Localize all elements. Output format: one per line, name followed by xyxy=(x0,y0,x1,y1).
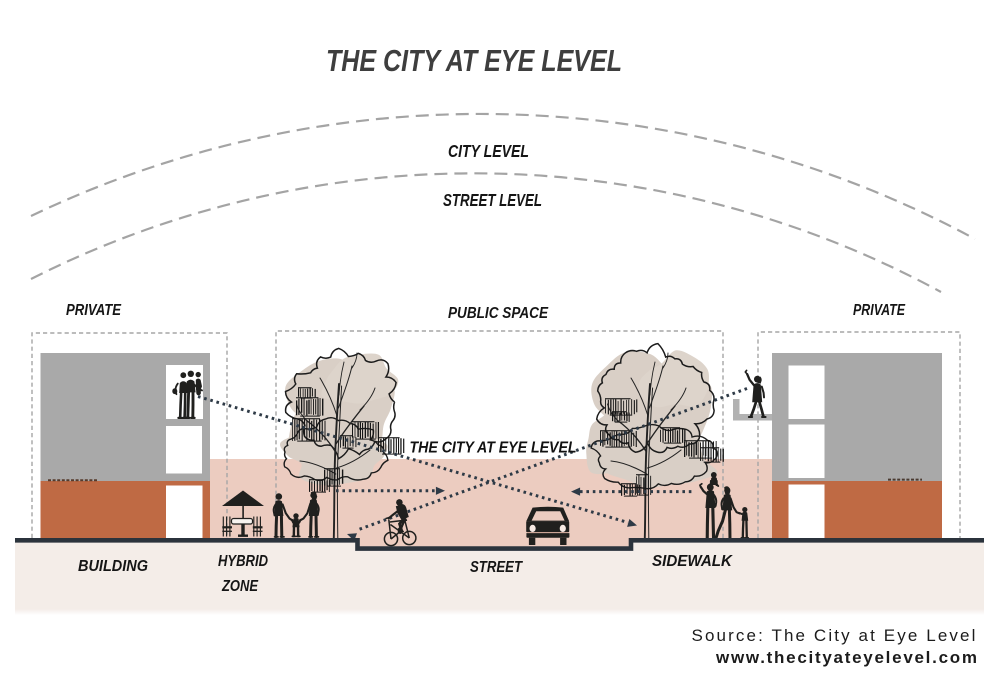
svg-text:STREET LEVEL: STREET LEVEL xyxy=(443,190,542,210)
svg-text:HYBRID: HYBRID xyxy=(218,553,268,570)
svg-text:PRIVATE: PRIVATE xyxy=(853,302,906,319)
svg-text:THE CITY AT EYE LEVEL: THE CITY AT EYE LEVEL xyxy=(326,43,622,78)
svg-text:STREET: STREET xyxy=(470,559,523,576)
svg-text:Source: The City at Eye Level: Source: The City at Eye Level xyxy=(692,626,978,645)
svg-text:THE CITY AT EYE LEVEL: THE CITY AT EYE LEVEL xyxy=(410,440,577,457)
svg-text:CITY LEVEL: CITY LEVEL xyxy=(448,141,529,161)
svg-text:PRIVATE: PRIVATE xyxy=(66,302,122,319)
svg-text:PUBLIC SPACE: PUBLIC SPACE xyxy=(448,305,549,322)
svg-text:ZONE: ZONE xyxy=(221,578,259,595)
svg-text:SIDEWALK: SIDEWALK xyxy=(652,553,733,570)
svg-text:www.thecityateyelevel.com: www.thecityateyelevel.com xyxy=(715,648,977,667)
svg-text:BUILDING: BUILDING xyxy=(78,558,148,575)
